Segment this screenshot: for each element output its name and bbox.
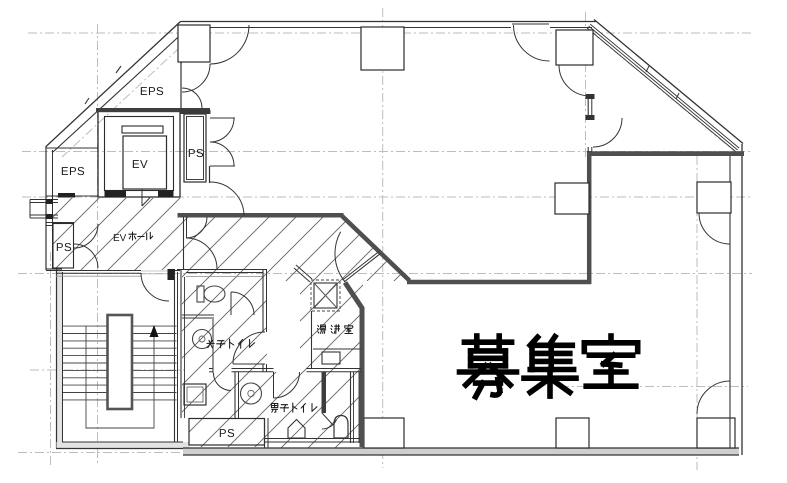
svg-text:PS: PS (188, 148, 204, 160)
svg-text:EPS: EPS (61, 166, 85, 178)
svg-text:PS: PS (56, 242, 72, 254)
svg-text:EV: EV (113, 233, 127, 244)
svg-text:EPS: EPS (140, 86, 164, 98)
svg-text:EV: EV (132, 159, 148, 171)
svg-text:PS: PS (219, 428, 235, 440)
